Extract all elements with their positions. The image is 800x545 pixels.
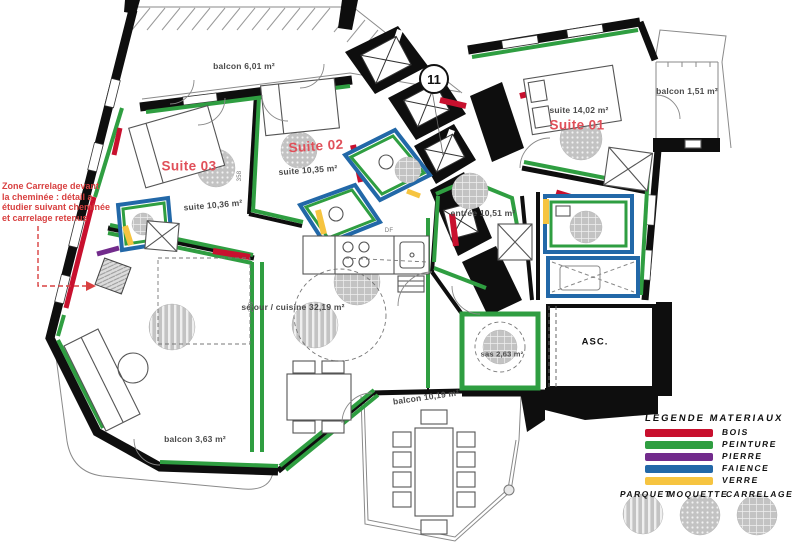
legend-label-bois: BOIS <box>721 427 749 437</box>
floor-plan-drawing <box>0 0 800 545</box>
annotation-line: Zone Carrelage devant <box>2 181 124 192</box>
room-label-balcon-bl: balcon 3,63 m² <box>164 434 226 444</box>
dimension-358: 358 <box>237 171 243 182</box>
kitchen-df-label: DF <box>385 228 393 234</box>
legend-swatch-pierre <box>645 453 713 461</box>
room-label-sejour: séjour / cuisine 32,19 m² <box>241 302 344 312</box>
room-label-asc: ASC. <box>582 337 609 348</box>
legend-swatch-faience <box>645 465 713 473</box>
legend-label-carrelage: CARRELAGE <box>725 489 794 499</box>
suite03-name: Suite 03 <box>162 159 217 174</box>
legend-swatch-bois <box>645 429 713 437</box>
carrelage-annotation: Zone Carrelage devant la cheminée : déta… <box>2 181 124 223</box>
pierre-segments <box>97 248 119 254</box>
legend-label-peinture: PEINTURE <box>721 439 777 449</box>
legend-label-parquet: PARQUET <box>619 489 672 499</box>
dimension-256: 256 <box>249 302 255 313</box>
floor-plan-page: balcon 6,01 m² Suite 03 suite 10,36 m² S… <box>0 0 800 545</box>
legend-parquet-circle <box>623 494 663 534</box>
room-label-balcon-tl: balcon 6,01 m² <box>213 61 275 71</box>
legend-carrelage-circle <box>737 495 777 535</box>
legend-moquette-circle <box>680 495 720 535</box>
room-label-balcon-tr: balcon 1,51 m² <box>656 86 718 96</box>
legend-swatch-verre <box>645 477 713 485</box>
room-label-sas: sas 2,63 m² <box>481 350 524 359</box>
suite01-area: suite 14,02 m² <box>549 105 608 115</box>
legend-swatch-peinture <box>645 441 713 449</box>
legend-title: LEGENDE MATERIAUX <box>644 413 784 424</box>
annotation-line: la cheminée : détail a <box>2 192 124 203</box>
annotation-line: et carrelage retenus <box>2 213 124 224</box>
fireplace <box>95 258 131 294</box>
legend-floor-circles <box>623 494 777 535</box>
suite01-name: Suite 01 <box>550 118 605 133</box>
legend-label-verre: VERRE <box>721 475 759 485</box>
plan-number-marker: 11 <box>419 64 449 94</box>
annotation-line: étudier suivant cheminée <box>2 202 124 213</box>
legend-label-faience: FAIENCE <box>721 463 770 473</box>
legend-label-moquette: MOQUETTE <box>667 489 729 499</box>
legend-label-pierre: PIERRE <box>721 451 763 461</box>
room-label-entree: entrée 10,51 m² <box>451 208 516 218</box>
